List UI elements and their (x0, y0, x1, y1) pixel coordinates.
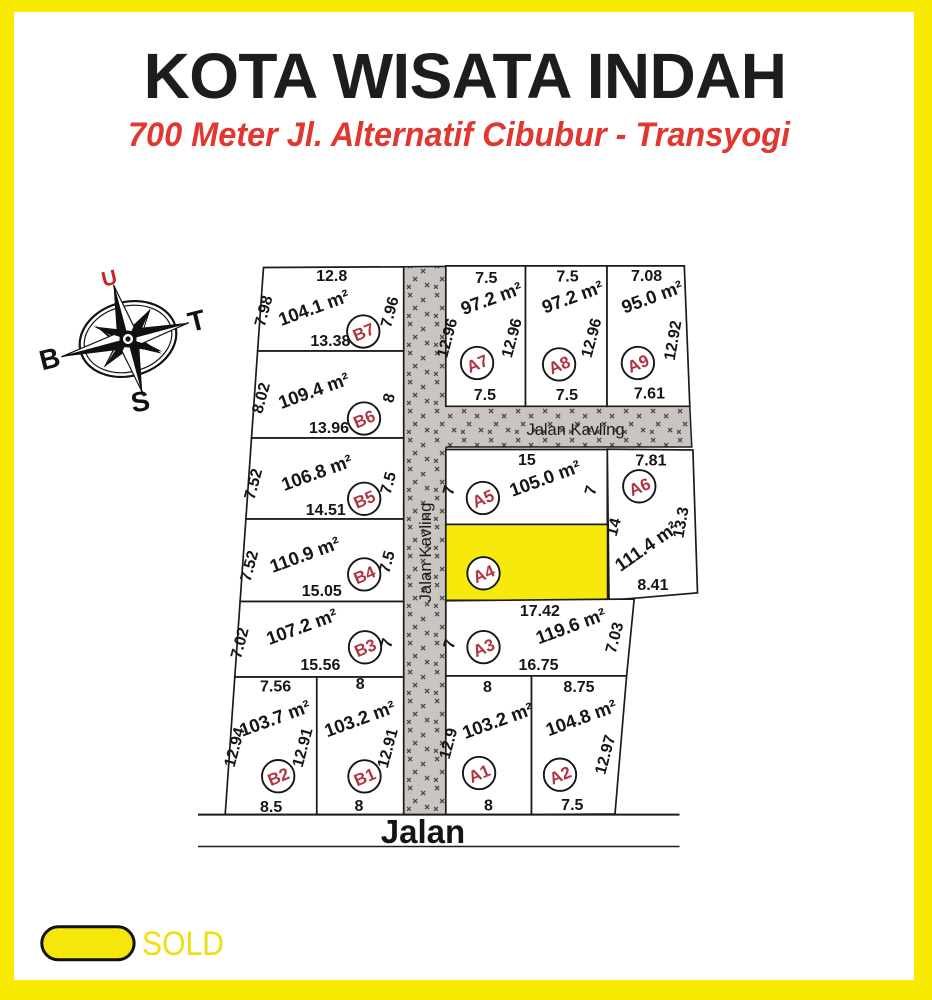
svg-text:15: 15 (518, 452, 536, 469)
svg-text:8.41: 8.41 (637, 577, 668, 594)
svg-text:7.81: 7.81 (635, 453, 666, 470)
svg-text:8: 8 (355, 798, 364, 815)
svg-text:8: 8 (356, 676, 365, 693)
svg-text:8.5: 8.5 (260, 799, 282, 816)
svg-text:13.96: 13.96 (309, 420, 349, 437)
svg-text:8: 8 (483, 679, 492, 696)
svg-text:15.05: 15.05 (302, 583, 342, 600)
svg-text:12.8: 12.8 (316, 268, 347, 285)
svg-text:7.5: 7.5 (556, 268, 578, 285)
svg-text:7.5: 7.5 (474, 387, 496, 404)
svg-text:8: 8 (484, 798, 493, 815)
svg-text:13.38: 13.38 (310, 333, 350, 350)
svg-text:SOLD: SOLD (142, 925, 224, 963)
svg-text:8.75: 8.75 (563, 679, 594, 696)
svg-text:KOTA WISATA INDAH: KOTA WISATA INDAH (144, 40, 787, 112)
svg-text:16.75: 16.75 (518, 657, 558, 674)
svg-text:7.56: 7.56 (260, 679, 291, 696)
svg-text:17.42: 17.42 (520, 603, 560, 620)
svg-text:7.5: 7.5 (556, 387, 578, 404)
svg-text:15.56: 15.56 (300, 657, 340, 674)
svg-text:7.61: 7.61 (634, 386, 665, 403)
svg-text:7.08: 7.08 (631, 268, 662, 285)
svg-text:Jalan: Jalan (381, 813, 465, 850)
svg-text:Jalan Kavling: Jalan Kavling (417, 503, 435, 603)
svg-text:700 Meter Jl. Alternatif Cibub: 700 Meter Jl. Alternatif Cibubur - Trans… (128, 116, 791, 154)
svg-text:Jalan Kavling: Jalan Kavling (527, 421, 625, 439)
svg-text:7.5: 7.5 (561, 797, 583, 814)
svg-text:7.5: 7.5 (475, 270, 497, 287)
svg-text:14.51: 14.51 (306, 502, 346, 519)
